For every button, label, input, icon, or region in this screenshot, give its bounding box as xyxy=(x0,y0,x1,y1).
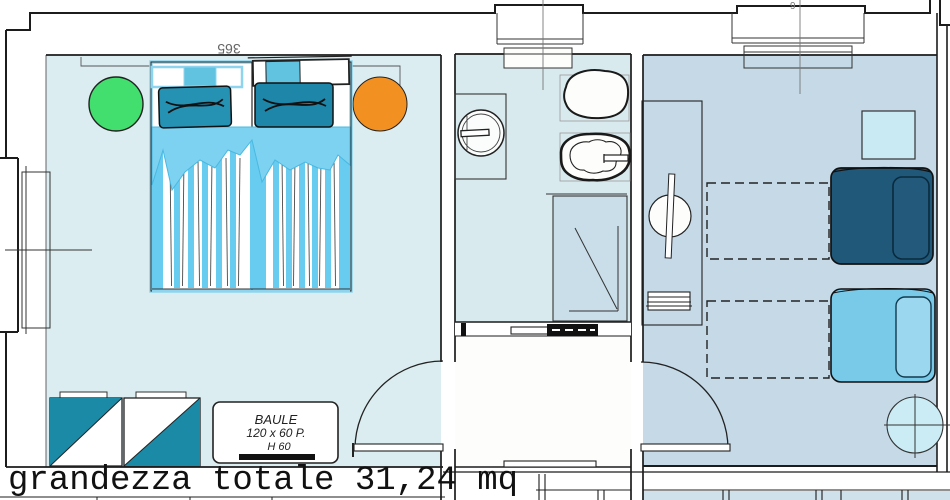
svg-text:BAULE: BAULE xyxy=(255,412,298,427)
svg-text:H 60: H 60 xyxy=(267,441,291,453)
svg-text:grandezza totale 31,24 mq: grandezza totale 31,24 mq xyxy=(8,462,518,500)
svg-text:9: 9 xyxy=(790,1,796,12)
svg-text:120 x 60 P.: 120 x 60 P. xyxy=(246,426,305,440)
svg-text:365: 365 xyxy=(217,41,241,57)
